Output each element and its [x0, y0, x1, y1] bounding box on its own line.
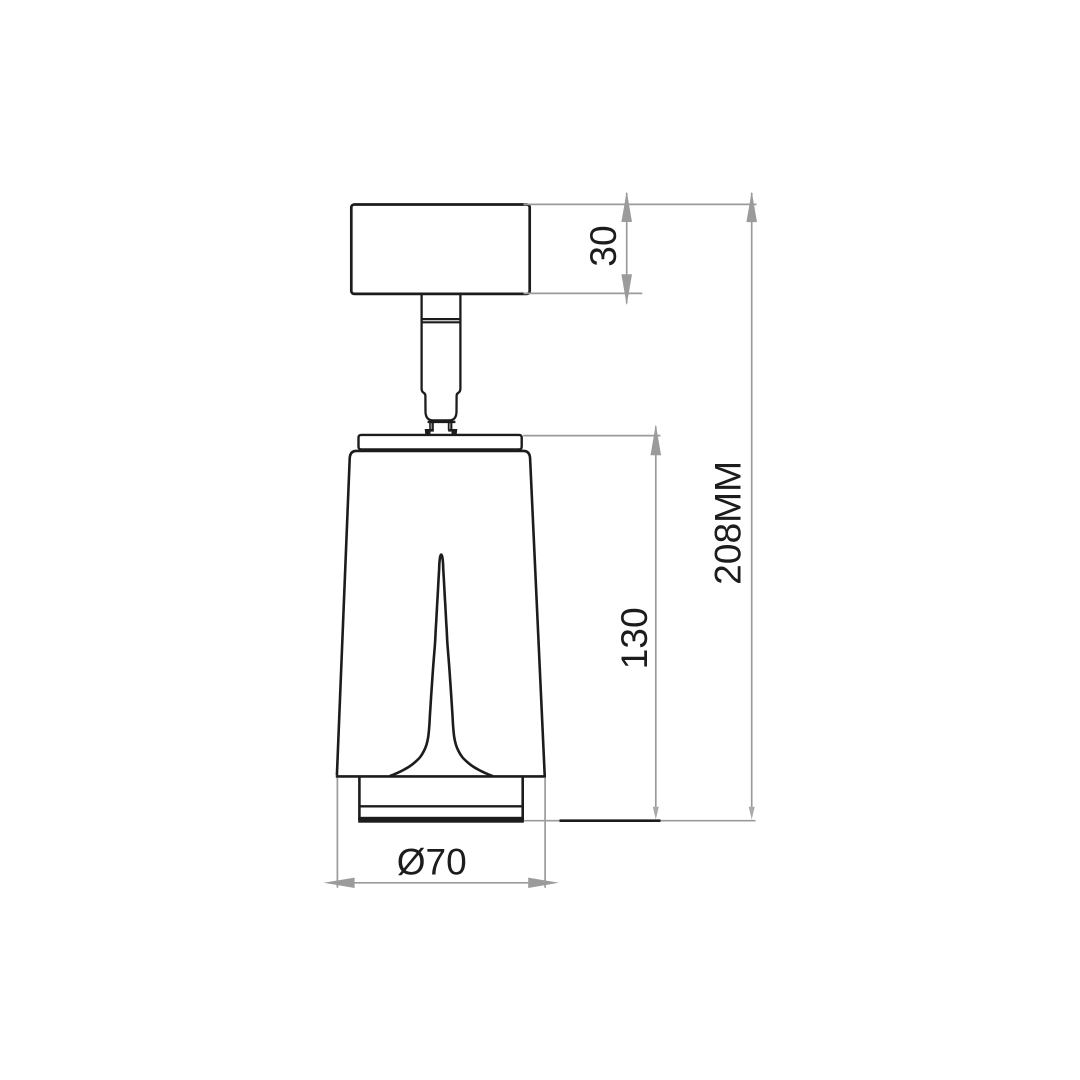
svg-text:208MM: 208MM	[707, 461, 749, 585]
svg-text:130: 130	[613, 607, 655, 669]
svg-text:30: 30	[582, 225, 624, 266]
svg-text:Ø70: Ø70	[397, 841, 467, 882]
